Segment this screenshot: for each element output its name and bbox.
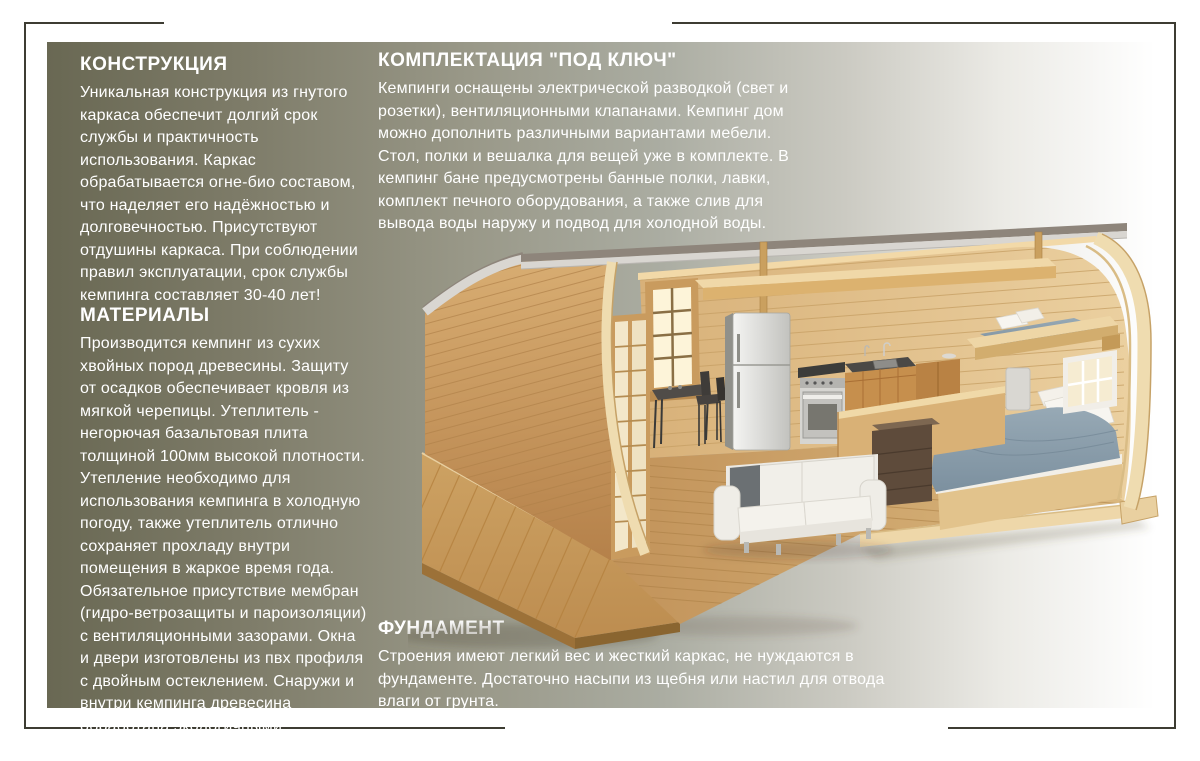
house-cutaway-illustration — [408, 196, 1168, 661]
frame-line-top-left — [24, 22, 164, 24]
equipment-title: КОМПЛЕКТАЦИЯ "ПОД КЛЮЧ" — [378, 50, 790, 72]
house-svg — [408, 196, 1168, 661]
frame-line-top-right — [672, 22, 1176, 24]
construction-body: Уникальная конструкция из гнутого каркас… — [80, 82, 362, 307]
window-right — [1063, 350, 1117, 414]
materials-title: МАТЕРИАЛЫ — [80, 305, 368, 327]
section-construction: КОНСТРУКЦИЯ Уникальная конструкция из гн… — [80, 54, 362, 307]
radiator — [1006, 368, 1030, 410]
frame-line-left — [24, 22, 26, 729]
section-materials: МАТЕРИАЛЫ Производится кемпинг из сухих … — [80, 305, 368, 761]
frame-line-bottom-right — [948, 727, 1176, 729]
construction-title: КОНСТРУКЦИЯ — [80, 54, 362, 76]
materials-body: Производится кемпинг из сухих хвойных по… — [80, 333, 368, 761]
window-left — [643, 278, 704, 402]
fridge — [725, 313, 790, 450]
frame-line-right — [1174, 22, 1176, 729]
